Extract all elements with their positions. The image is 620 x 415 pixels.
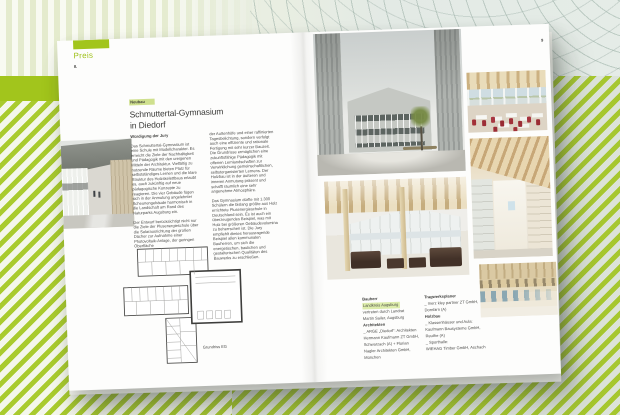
section-tab [73,39,109,49]
page-number-left: 8. [74,64,94,74]
left-page: Preis 8. Neubau Schmuttertal-Gymnasium i… [57,32,315,390]
photo-layer [507,201,514,210]
section-tab-label: Preis [73,51,93,61]
jury-heading: Würdigung der Jury [130,132,196,139]
credits-column-1: Bauherr Landkreis Augsburg vertreten dur… [362,294,424,382]
photo-layer [429,247,462,267]
photo-layer [387,258,404,269]
photo-layer [317,150,466,176]
photo-layer [493,180,528,250]
photo-corridor [470,136,553,259]
paragraph: Das Schmuttertal-Gymnasium ist eine Schu… [131,141,199,215]
photo-layer [472,119,476,125]
photo-layer [93,191,95,197]
photo-covered-walkway [60,138,134,228]
photo-layer [434,29,463,152]
photo-lounge [324,177,469,280]
photo-layer [476,115,487,119]
photo-layer [63,213,134,229]
paragraph: der Außenhöfe und einer raffinierten Tag… [209,129,277,194]
photo-layer [467,87,547,106]
photo-layer [315,33,344,156]
credits-column-2: Tragwerksplaner _ merz kley partner ZT G… [424,291,520,382]
photo-layer [411,106,431,131]
credit-line: München [364,353,422,361]
photo-courtyard [313,29,466,176]
photo-layer [474,247,553,258]
photo-layer [61,168,88,217]
photo-layer [479,262,556,280]
right-page: 9 [303,24,561,382]
photo-layer [480,278,557,289]
article-title: Schmuttertal-Gymnasium in Diedorf [129,104,300,131]
floor-plan: Grundriss EG [121,240,247,366]
photo-classroom [466,70,547,133]
photo-layer [527,181,553,256]
photo-layer [471,179,495,259]
magazine-spread: Preis 8. Neubau Schmuttertal-Gymnasium i… [57,24,561,391]
page-number-right: 9 [523,38,543,48]
photo-layer [351,251,382,269]
photo-layer [409,257,426,268]
